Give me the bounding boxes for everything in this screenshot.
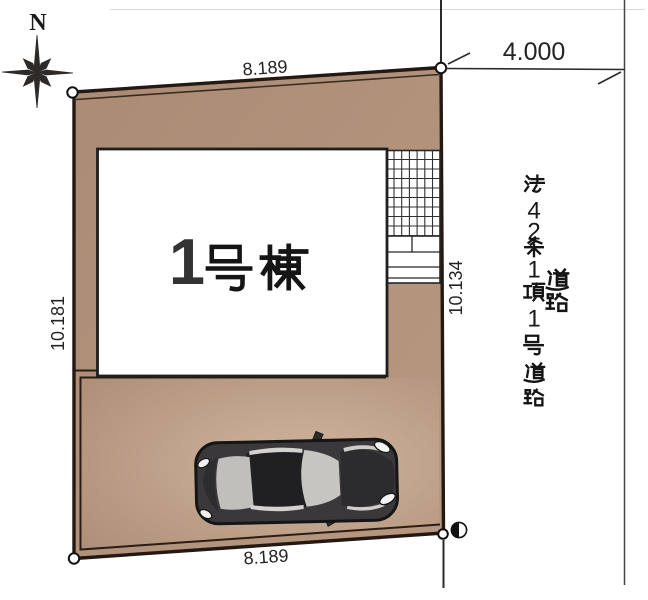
svg-text:4.000: 4.000: [503, 38, 566, 66]
svg-text:8.189: 8.189: [243, 545, 289, 568]
svg-text:10.181: 10.181: [48, 296, 68, 351]
svg-text:8.189: 8.189: [242, 56, 288, 79]
svg-text:N: N: [29, 10, 47, 36]
svg-text:1: 1: [527, 306, 540, 333]
svg-text:10.134: 10.134: [446, 260, 466, 315]
svg-text:1: 1: [527, 257, 540, 284]
svg-text:1: 1: [169, 225, 205, 298]
